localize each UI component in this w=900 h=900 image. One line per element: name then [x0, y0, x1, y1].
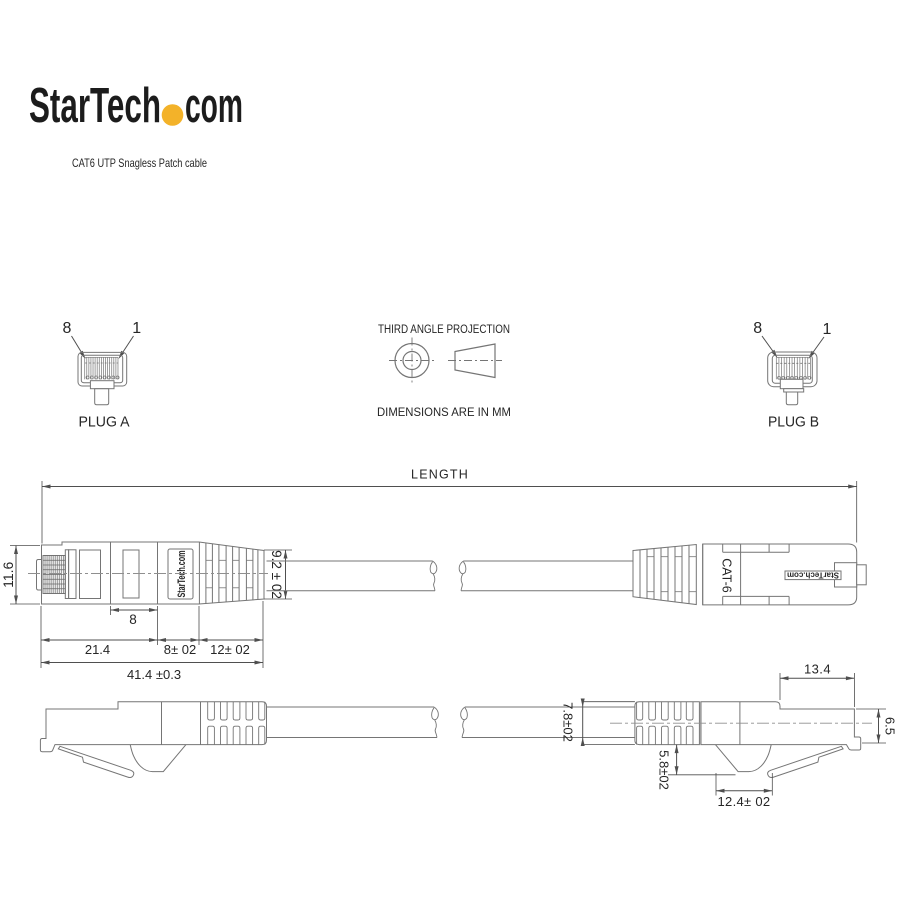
svg-text:9.2 ± 02: 9.2 ± 02: [269, 550, 284, 599]
svg-text:13.4: 13.4: [804, 662, 831, 677]
svg-text:PLUG A: PLUG A: [79, 415, 130, 431]
svg-text:1: 1: [823, 321, 832, 338]
svg-text:PLUG B: PLUG B: [768, 415, 819, 431]
svg-text:21.4: 21.4: [85, 642, 110, 657]
svg-text:7.8±02: 7.8±02: [561, 702, 576, 742]
svg-text:11.6: 11.6: [0, 561, 16, 587]
svg-text:CAT-6: CAT-6: [720, 558, 734, 593]
svg-text:StarTech.com: StarTech.com: [787, 571, 839, 580]
svg-text:6.5: 6.5: [883, 717, 898, 735]
svg-text:com: com: [185, 79, 243, 133]
svg-text:8: 8: [129, 612, 137, 627]
svg-text:StarTech: StarTech: [29, 79, 161, 133]
svg-text:DIMENSIONS ARE IN MM: DIMENSIONS ARE IN MM: [377, 407, 511, 419]
svg-text:12.4± 02: 12.4± 02: [718, 794, 771, 809]
svg-text:8: 8: [63, 320, 72, 337]
svg-text:5.8±02: 5.8±02: [657, 750, 672, 790]
svg-text:1: 1: [132, 320, 141, 337]
svg-text:12± 02: 12± 02: [210, 642, 250, 657]
svg-text:41.4 ±0.3: 41.4 ±0.3: [127, 667, 181, 682]
svg-text:THIRD ANGLE PROJECTION: THIRD ANGLE PROJECTION: [378, 324, 510, 336]
svg-text:LENGTH: LENGTH: [411, 468, 469, 482]
svg-text:8: 8: [753, 320, 762, 337]
svg-text:8± 02: 8± 02: [164, 642, 196, 657]
svg-text:CAT6 UTP Snagless Patch cable: CAT6 UTP Snagless Patch cable: [72, 156, 207, 170]
